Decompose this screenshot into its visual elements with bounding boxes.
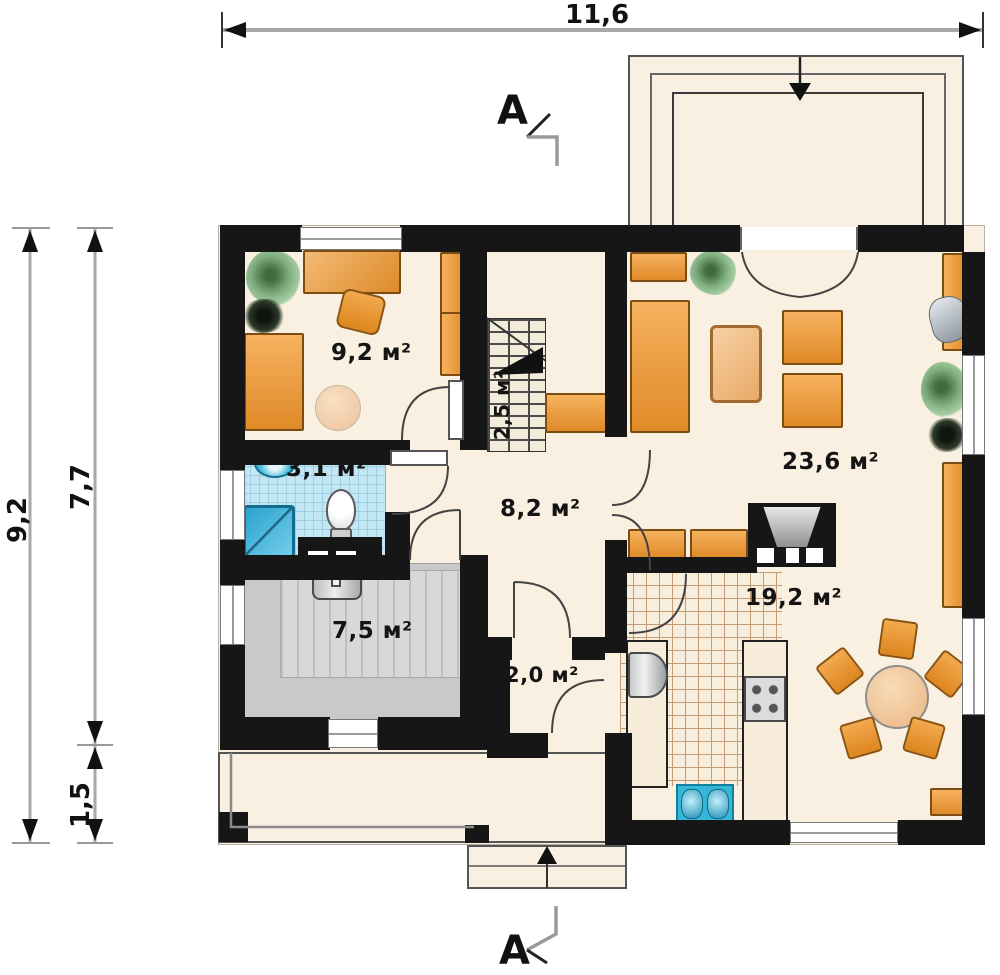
dimension-height-main: 7,7 [66,452,96,522]
section-marker-bottom: A [499,928,530,974]
room-label-vestibule: 2,0 м² [505,663,579,687]
dimension-height-total: 9,2 [3,485,33,555]
room-label-boiler-room: 7,5 м² [332,618,413,644]
dimension-height-porch: 1,5 [66,770,96,840]
dimension-width-top: 11,6 [565,0,629,30]
floor-plan: 11,6 9,2 7,7 1,5 A A 9,2 м² 2,5 м² 3,1 м… [0,0,1000,975]
room-label-staircase: 2,5 м² [490,364,514,446]
room-label-cabinet: 9,2 м² [331,340,412,366]
plan-linework [0,0,1000,975]
room-label-living-room: 23,6 м² [782,449,879,475]
section-marker-top: A [497,88,528,134]
room-label-hall: 8,2 м² [500,496,581,522]
room-label-bathroom: 3,1 м² [286,456,367,482]
room-label-kitchen-dining: 19,2 м² [745,585,842,611]
